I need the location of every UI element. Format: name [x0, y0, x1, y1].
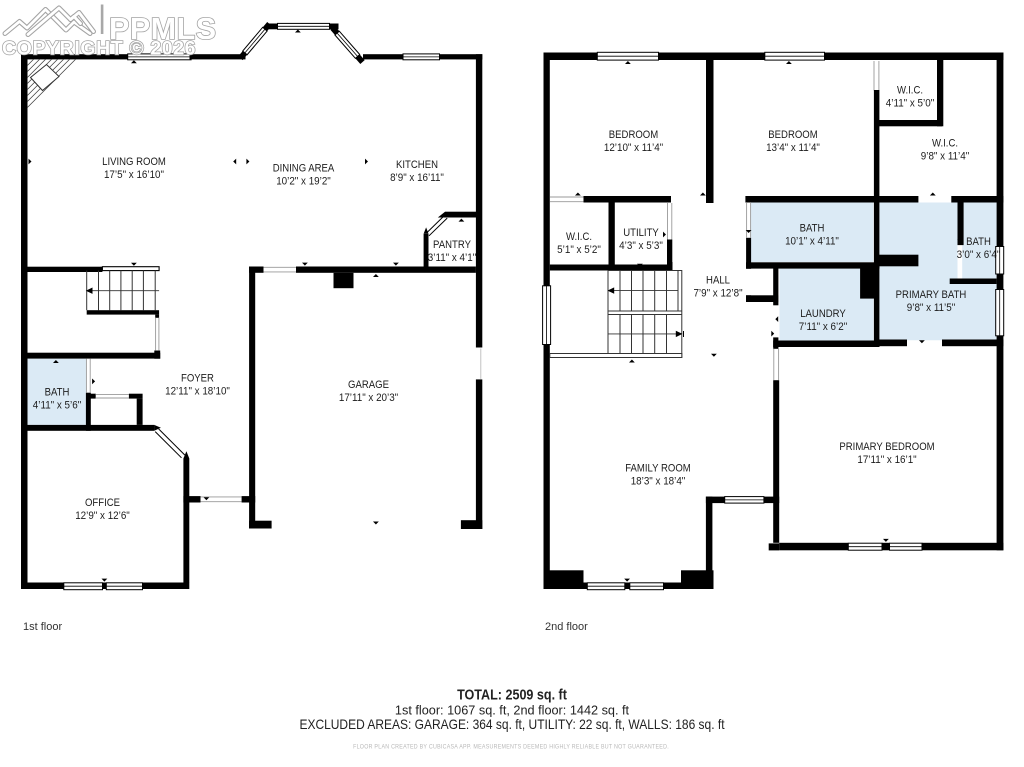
- svg-text:17’11" x 20’3": 17’11" x 20’3": [339, 393, 399, 404]
- svg-text:13’4" x 11’4": 13’4" x 11’4": [766, 143, 820, 154]
- svg-text:W.I.C.: W.I.C.: [932, 138, 958, 150]
- svg-text:LAUNDRY: LAUNDRY: [800, 308, 846, 320]
- svg-text:3’0" x 6’4": 3’0" x 6’4": [957, 250, 1001, 261]
- svg-text:12’11" x 18’10": 12’11" x 18’10": [165, 386, 230, 397]
- svg-text:18’3" x 18’4": 18’3" x 18’4": [631, 476, 686, 487]
- svg-text:W.I.C.: W.I.C.: [566, 231, 592, 243]
- svg-text:FLOOR PLAN CREATED BY CUBICASA: FLOOR PLAN CREATED BY CUBICASA APP. MEAS…: [353, 744, 669, 751]
- svg-text:12’10" x 11’4": 12’10" x 11’4": [604, 143, 664, 154]
- svg-text:FOYER: FOYER: [181, 373, 214, 385]
- svg-text:UTILITY: UTILITY: [623, 227, 659, 239]
- svg-text:BATH: BATH: [800, 223, 825, 235]
- svg-text:PRIMARY BEDROOM: PRIMARY BEDROOM: [839, 441, 934, 453]
- svg-text:9’8" x 11’4": 9’8" x 11’4": [921, 151, 970, 162]
- svg-text:TOTAL: 2509 sq. ft: TOTAL: 2509 sq. ft: [457, 687, 567, 703]
- svg-text:8’9" x 16’11": 8’9" x 16’11": [390, 173, 444, 184]
- svg-text:4’11" x 5’6": 4’11" x 5’6": [33, 400, 82, 411]
- svg-text:PRIMARY BATH: PRIMARY BATH: [896, 289, 967, 301]
- svg-text:7’11" x 6’2": 7’11" x 6’2": [799, 322, 848, 333]
- svg-text:17’11" x 16’1": 17’11" x 16’1": [857, 455, 917, 466]
- svg-text:COPYRIGHT © 2026: COPYRIGHT © 2026: [2, 38, 196, 60]
- svg-text:DINING AREA: DINING AREA: [273, 163, 335, 175]
- svg-text:4’3" x 5’3": 4’3" x 5’3": [619, 241, 663, 252]
- svg-text:KITCHEN: KITCHEN: [396, 159, 438, 171]
- svg-text:FAMILY ROOM: FAMILY ROOM: [625, 463, 691, 475]
- svg-text:W.I.C.: W.I.C.: [897, 85, 923, 97]
- svg-text:LIVING ROOM: LIVING ROOM: [102, 156, 166, 168]
- svg-text:BATH: BATH: [966, 236, 991, 248]
- svg-text:10’1" x 4’11": 10’1" x 4’11": [785, 236, 839, 247]
- svg-text:3’11" x 4’1": 3’11" x 4’1": [428, 253, 477, 264]
- svg-text:1st floor: 1st floor: [23, 621, 62, 633]
- svg-text:BEDROOM: BEDROOM: [768, 129, 817, 141]
- svg-text:10’2" x 19’2": 10’2" x 19’2": [276, 176, 331, 187]
- svg-text:PANTRY: PANTRY: [433, 239, 471, 251]
- svg-text:12’9" x 12’6": 12’9" x 12’6": [75, 511, 130, 522]
- svg-text:2nd floor: 2nd floor: [545, 621, 588, 633]
- svg-text:EXCLUDED AREAS: GARAGE: 364 sq: EXCLUDED AREAS: GARAGE: 364 sq. ft, UTIL…: [299, 716, 724, 732]
- svg-text:HALL: HALL: [706, 275, 730, 287]
- svg-text:5’1" x 5’2": 5’1" x 5’2": [557, 245, 601, 256]
- svg-text:17’5" x 16’10": 17’5" x 16’10": [104, 170, 164, 181]
- svg-text:BEDROOM: BEDROOM: [609, 129, 658, 141]
- svg-text:7’9" x 12’8": 7’9" x 12’8": [693, 288, 742, 299]
- svg-text:9’8" x 11’5": 9’8" x 11’5": [907, 303, 956, 314]
- svg-text:GARAGE: GARAGE: [348, 379, 389, 391]
- svg-text:OFFICE: OFFICE: [85, 497, 120, 509]
- svg-text:4’11" x 5’0": 4’11" x 5’0": [886, 98, 935, 109]
- svg-text:BATH: BATH: [45, 387, 70, 399]
